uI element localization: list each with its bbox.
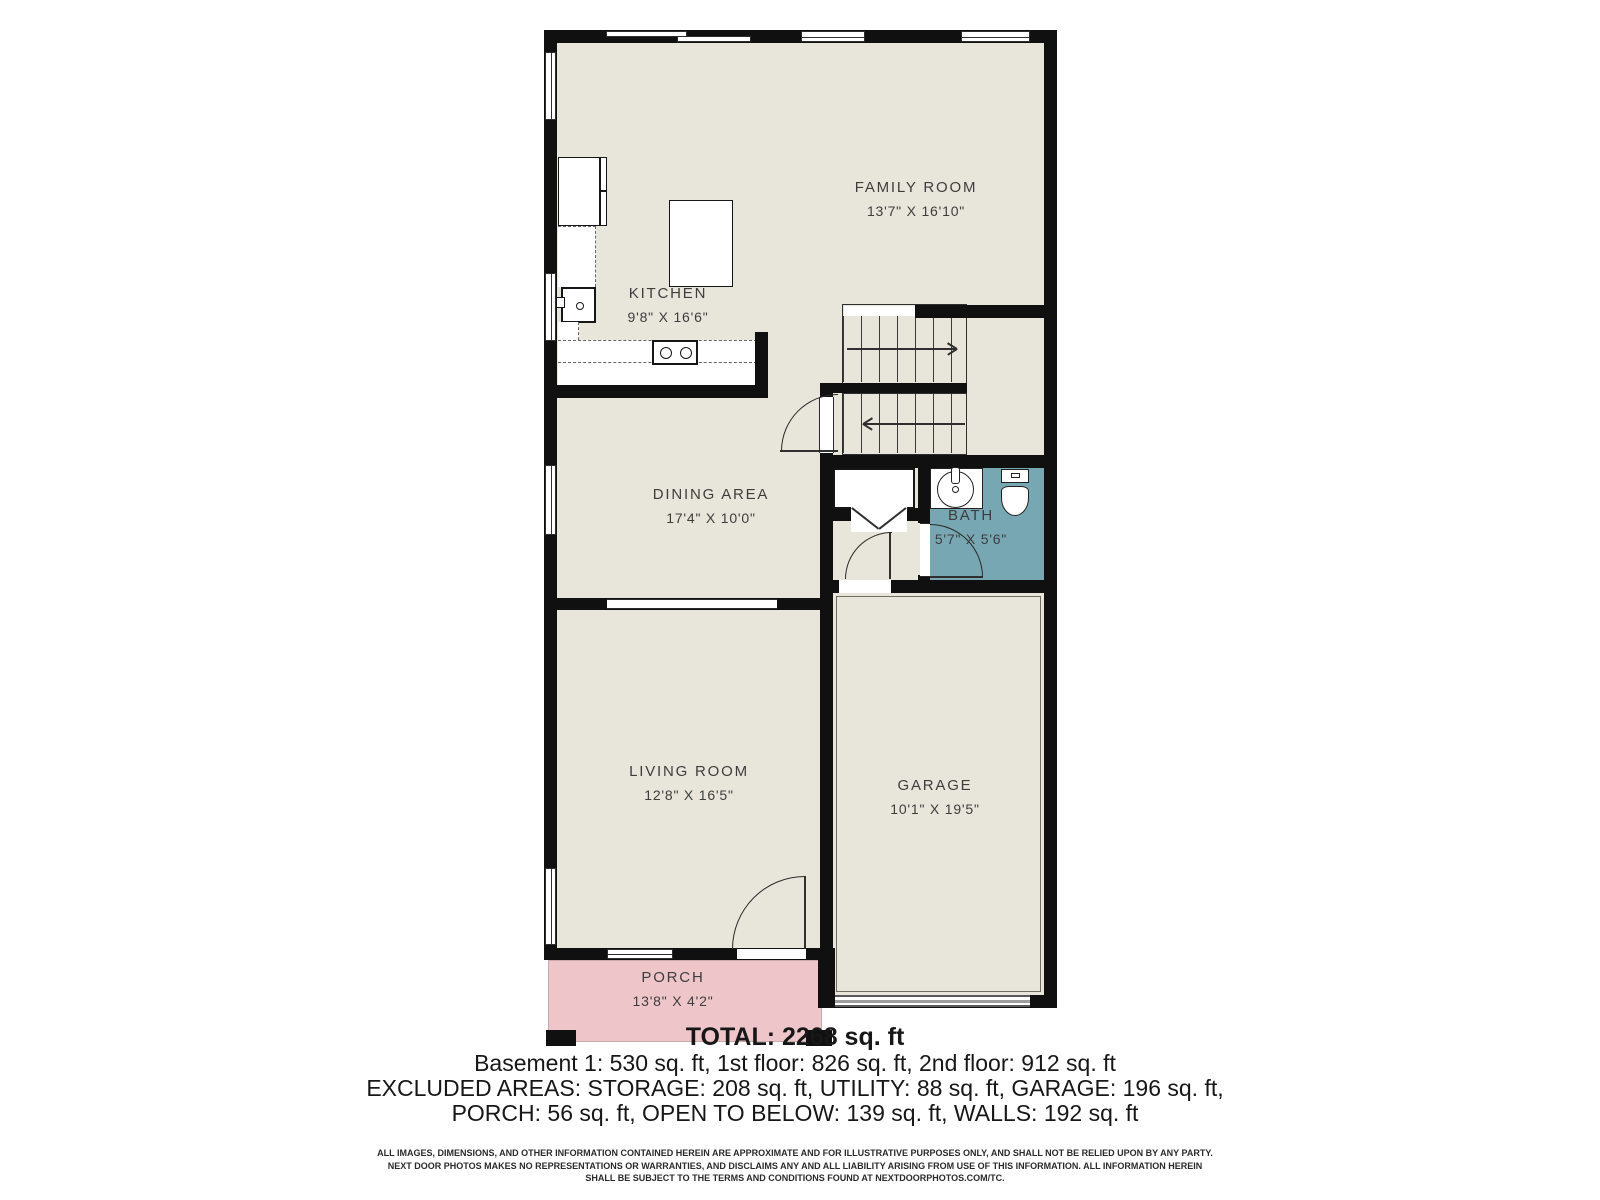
kitchen-sink xyxy=(561,287,596,323)
kitchen-dims: 9'8" X 16'6" xyxy=(628,310,709,325)
family-room-label: FAMILY ROOM 13'7" X 16'10" xyxy=(855,180,978,219)
stairs-up-arrow xyxy=(847,348,957,350)
window-left-living xyxy=(545,868,556,945)
disclaimer-line-3: SHALL BE SUBJECT TO THE TERMS AND CONDIT… xyxy=(295,1172,1295,1185)
toilet-tank xyxy=(1001,469,1029,483)
bath-sink-faucet xyxy=(951,467,960,484)
window-top-family-1 xyxy=(801,31,865,42)
floor-plan-page: FAMILY ROOM 13'7" X 16'10" KITCHEN 9'8" … xyxy=(0,0,1600,1200)
garage-overhead-door xyxy=(835,995,1030,1007)
wall-hall-top xyxy=(820,455,1044,468)
wall-bath-left-upper xyxy=(918,466,930,523)
wall-stair-top xyxy=(915,305,1044,318)
kitchen-island xyxy=(669,200,733,287)
bath-dims: 5'7" X 5'6" xyxy=(935,532,1007,547)
bath-label: BATH 5'7" X 5'6" xyxy=(935,508,1007,547)
dining-area-name: DINING AREA xyxy=(653,487,770,502)
disclaimer-line-2: NEXT DOOR PHOTOS MAKES NO REPRESENTATION… xyxy=(295,1160,1295,1173)
living-room-dims: 12'8" X 16'5" xyxy=(629,788,749,803)
stairs-open-band xyxy=(844,306,915,316)
window-left-kitchen-2 xyxy=(545,273,556,341)
porch-name: PORCH xyxy=(633,970,714,985)
closet-box xyxy=(833,468,915,509)
family-room-name: FAMILY ROOM xyxy=(855,180,978,195)
dining-area-label: DINING AREA 17'4" X 10'0" xyxy=(653,487,770,526)
total-area: TOTAL: 2268 sq. ft xyxy=(295,1024,1295,1051)
living-room-name: LIVING ROOM xyxy=(629,764,749,779)
porch-label: PORCH 13'8" X 4'2" xyxy=(633,970,714,1009)
garage-label: GARAGE 10'1" X 19'5" xyxy=(890,778,980,817)
porch-dims: 13'8" X 4'2" xyxy=(633,994,714,1009)
window-top-slider-right xyxy=(677,36,751,42)
opening-front-door xyxy=(737,949,806,959)
disclaimer-line-1: ALL IMAGES, DIMENSIONS, AND OTHER INFORM… xyxy=(295,1147,1295,1160)
floor-areas: Basement 1: 530 sq. ft, 1st floor: 826 s… xyxy=(295,1051,1295,1076)
window-top-slider-left xyxy=(606,31,687,37)
window-living-south xyxy=(607,949,673,959)
wall-right xyxy=(1044,30,1057,1008)
window-left-kitchen-1 xyxy=(545,52,556,120)
wall-kitchen-endcap xyxy=(755,332,768,398)
wall-garage-top xyxy=(891,580,1044,593)
wall-closet-stub-left xyxy=(833,508,852,521)
stairs-down-arrow xyxy=(863,423,965,425)
area-summary: TOTAL: 2268 sq. ft Basement 1: 530 sq. f… xyxy=(295,1024,1295,1126)
bath-name: BATH xyxy=(935,508,1007,523)
kitchen-name: KITCHEN xyxy=(628,286,709,301)
disclaimer: ALL IMAGES, DIMENSIONS, AND OTHER INFORM… xyxy=(295,1147,1295,1185)
wall-spine-main xyxy=(820,453,833,948)
family-room-dims: 13'7" X 16'10" xyxy=(855,204,978,219)
wall-stair-mid xyxy=(833,383,967,393)
garage-dims: 10'1" X 19'5" xyxy=(890,802,980,817)
kitchen-counter-upper xyxy=(558,226,596,287)
kitchen-label: KITCHEN 9'8" X 16'6" xyxy=(628,286,709,325)
excluded-areas-1: EXCLUDED AREAS: STORAGE: 208 sq. ft, UTI… xyxy=(295,1076,1295,1101)
opening-bath-door xyxy=(920,523,930,577)
wall-kitchen-south xyxy=(544,385,758,398)
garage-name: GARAGE xyxy=(890,778,980,793)
opening-garage-door-from-hall xyxy=(839,580,891,593)
dining-area-dims: 17'4" X 10'0" xyxy=(653,511,770,526)
refrigerator xyxy=(558,157,607,226)
opening-dining-living xyxy=(607,599,777,609)
living-room-label: LIVING ROOM 12'8" X 16'5" xyxy=(629,764,749,803)
window-top-family-2 xyxy=(961,31,1030,42)
excluded-areas-2: PORCH: 56 sq. ft, OPEN TO BELOW: 139 sq.… xyxy=(295,1101,1295,1126)
window-left-dining xyxy=(545,465,556,535)
stove xyxy=(652,340,698,365)
